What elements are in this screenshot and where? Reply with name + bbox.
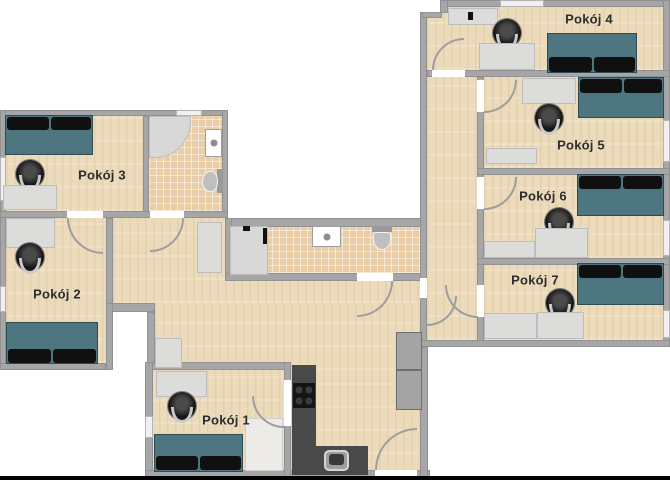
washbasin-icon	[312, 226, 341, 247]
window	[500, 0, 544, 7]
door-opening	[150, 211, 184, 218]
door-opening	[477, 177, 484, 209]
window	[663, 220, 670, 256]
pillow-icon	[156, 456, 198, 470]
wall	[422, 12, 442, 18]
pillow-icon	[579, 265, 621, 278]
hall-cabinet	[155, 338, 182, 368]
room-label-pokoj-2: Pokój 2	[33, 287, 81, 302]
cooktop-icon	[293, 383, 315, 408]
wall	[420, 340, 670, 347]
pillow-icon	[623, 176, 662, 189]
wall	[147, 312, 155, 367]
door-opening	[357, 273, 393, 281]
bottom-border	[0, 476, 670, 480]
floor-plan: Pokój 1 Pokój 2 Pokój 3 Pokój 4 Pokój 5 …	[0, 0, 670, 480]
room-label-pokoj-1: Pokój 1	[202, 413, 250, 428]
shower-rail-icon	[263, 228, 267, 244]
wall	[222, 110, 228, 213]
pillow-icon	[580, 79, 622, 93]
desk-pokoj-3	[3, 185, 57, 210]
room-label-pokoj-3: Pokój 3	[78, 168, 126, 183]
room-label-pokoj-4: Pokój 4	[565, 12, 613, 27]
floor-living-mid	[155, 303, 420, 370]
wall	[106, 218, 113, 310]
wall	[106, 303, 113, 370]
desk-pokoj-4	[479, 43, 535, 70]
cabinet-pokoj-6	[484, 241, 535, 258]
pillow-icon	[51, 117, 91, 130]
door-opening	[477, 285, 484, 317]
corridor-cabinet	[396, 332, 422, 370]
desk-pokoj-7	[537, 312, 584, 339]
corridor-cabinet	[396, 370, 422, 410]
pillow-icon	[579, 176, 621, 189]
door-opening	[284, 380, 291, 426]
wall	[0, 211, 228, 218]
door-opening	[477, 80, 484, 112]
door-opening	[420, 278, 427, 298]
pillow-icon	[549, 57, 592, 72]
pillow-icon	[594, 57, 635, 72]
room-label-pokoj-6: Pokój 6	[519, 189, 567, 204]
hall-cabinet	[197, 222, 222, 273]
pillow-icon	[623, 265, 662, 278]
pillow-icon	[200, 456, 241, 470]
kitchen-sink-icon	[324, 450, 349, 471]
wall	[0, 363, 106, 370]
pillow-icon	[624, 79, 662, 93]
room-label-pokoj-7: Pokój 7	[511, 273, 559, 288]
shower-control-icon	[243, 226, 250, 231]
switch-icon	[468, 12, 473, 20]
door-opening	[432, 70, 465, 77]
washbasin-icon	[205, 129, 222, 157]
window	[145, 416, 153, 438]
chair-pokoj-3	[16, 160, 44, 188]
cabinet-pokoj-7	[484, 313, 537, 339]
wall	[440, 0, 448, 13]
chair-pokoj-5	[535, 104, 563, 132]
desk-pokoj-6	[535, 228, 588, 258]
toilet-icon	[202, 171, 218, 192]
wall	[106, 303, 155, 312]
cabinet-pokoj-4	[448, 8, 498, 25]
door-opening	[67, 211, 103, 218]
window	[663, 120, 670, 162]
chair-pokoj-2	[16, 243, 44, 271]
chair-pokoj-1	[168, 392, 196, 420]
pillow-icon	[53, 349, 96, 363]
window	[0, 286, 6, 312]
pillow-icon	[7, 117, 49, 130]
room-label-pokoj-5: Pokój 5	[557, 138, 605, 153]
pillow-icon	[8, 349, 51, 363]
window	[663, 310, 670, 338]
desk-pokoj-5	[522, 78, 576, 104]
cabinet-pokoj-5	[486, 148, 537, 164]
wall	[442, 0, 670, 7]
